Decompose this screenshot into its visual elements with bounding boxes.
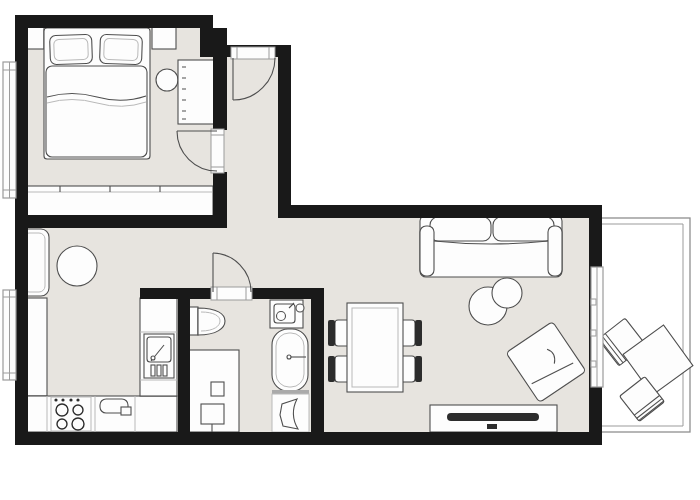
shower-washer-block xyxy=(189,350,239,432)
wall-kitchen-bath-divider xyxy=(178,288,190,432)
hand-basin xyxy=(272,394,309,432)
tv-console xyxy=(430,405,557,432)
floor-plan-canvas xyxy=(0,0,700,500)
wardrobe xyxy=(20,186,213,216)
window-bedroom-left xyxy=(3,62,16,198)
wall-bath-top-left xyxy=(190,288,212,299)
tub-step xyxy=(272,390,309,394)
sofa xyxy=(420,215,562,277)
kitchen-sink xyxy=(100,399,131,415)
tall-unit-appliance xyxy=(140,298,177,396)
dresser xyxy=(178,60,214,124)
wall-bedroom-right-upper xyxy=(213,28,227,130)
window-nook-left xyxy=(3,290,16,380)
cooktop-4-burners xyxy=(51,397,91,431)
balcony-door xyxy=(591,267,603,387)
round-table xyxy=(57,246,97,286)
wall-bedroom-bottom xyxy=(15,215,227,228)
wall-bath-right xyxy=(311,288,324,432)
coffee-table-round-small xyxy=(492,278,522,308)
nightstand-right xyxy=(152,27,176,49)
balcony xyxy=(598,218,693,432)
washbasin xyxy=(270,300,304,328)
wall-bedroom-right-lower xyxy=(213,172,227,218)
double-bed xyxy=(44,28,150,159)
floor-plan-drawing xyxy=(0,0,700,500)
dining-table xyxy=(347,303,403,392)
bathtub xyxy=(272,329,308,391)
round-stool xyxy=(156,69,178,91)
base-counter xyxy=(19,396,177,432)
